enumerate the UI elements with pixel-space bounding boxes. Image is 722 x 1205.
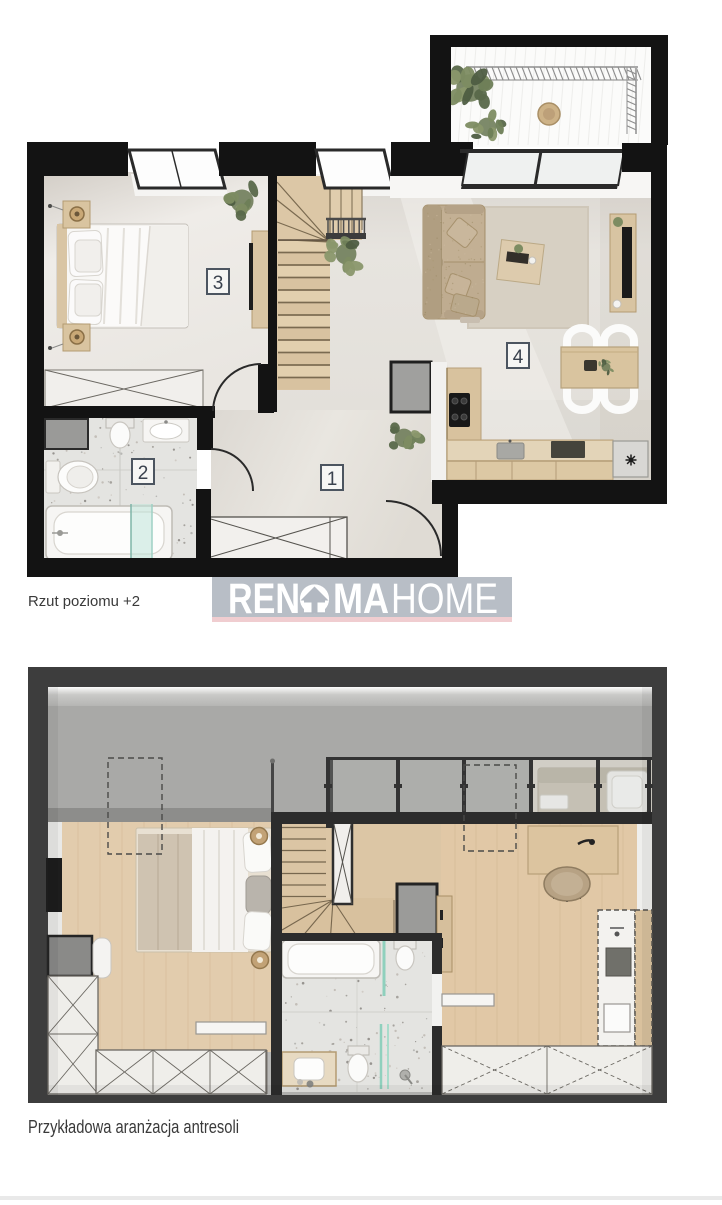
svg-text:2: 2	[138, 463, 149, 484]
svg-text:REN: REN	[228, 575, 300, 623]
svg-text:Przykładowa aranżacja antresol: Przykładowa aranżacja antresoli	[28, 1116, 239, 1137]
svg-text:MA: MA	[333, 575, 389, 623]
svg-text:3: 3	[213, 273, 224, 294]
svg-text:Rzut poziomu +2: Rzut poziomu +2	[28, 594, 140, 610]
svg-text:1: 1	[327, 469, 338, 490]
svg-text:HOME: HOME	[391, 575, 498, 623]
svg-text:4: 4	[513, 347, 524, 368]
